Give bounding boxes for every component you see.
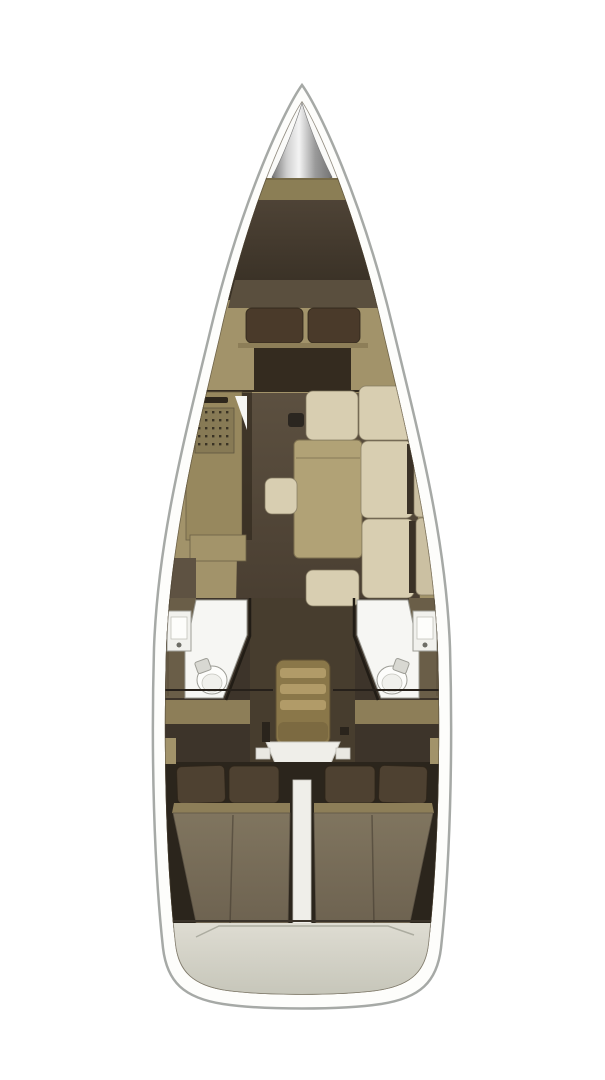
stair-tread-1 [280,668,326,678]
starboard-sink-faucet [423,643,428,648]
starboard-step-tab [336,748,350,759]
port-dark-mark [262,722,270,742]
stair-tread-2 [280,684,326,694]
galley-stove-grill [197,410,232,451]
vberth-head-band [228,280,378,308]
vberth-pillow-starboard [308,308,360,343]
port-aft-pillow-1 [176,765,225,804]
settee-gap-2 [409,521,416,593]
port-aft-pillow-2 [229,766,279,803]
starboard-aft-bed-strip [314,803,434,813]
yacht-floor-plan [0,0,605,1080]
settee-seat-5 [306,570,359,606]
vberth-base-strip [238,343,368,348]
starboard-aft-pillow-1 [325,766,375,803]
port-sink-basin [171,617,187,639]
bow-bulkhead [222,178,383,200]
port-aft-bed-strip [172,803,290,813]
keel-divider-column [293,780,311,930]
stair-base [278,722,328,742]
port-step-tab [256,748,270,759]
starboard-aft-pillow-2 [378,765,427,804]
vberth-pillow-port [246,308,303,343]
vberth-foot-dark [254,348,351,392]
starboard-dark-mark [340,727,349,735]
starboard-sink-basin [417,617,433,639]
stair-tread-3 [280,700,326,710]
galley-cabinet [190,535,246,561]
settee-seat-4 [362,519,414,598]
salon-ottoman [265,478,297,514]
floor-dark-item [288,413,304,427]
interior [150,95,455,1020]
settee-seat-3 [361,441,413,518]
port-sink-faucet [177,643,182,648]
settee-seat-1 [306,391,358,440]
